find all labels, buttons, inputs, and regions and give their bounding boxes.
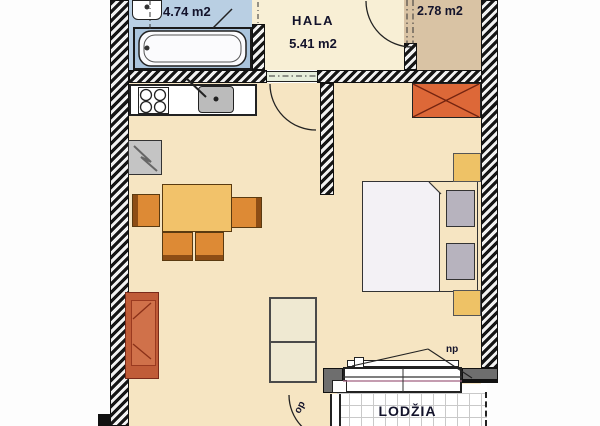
wall-stub-bottom-left [98, 414, 110, 426]
bed-pillow-2 [446, 243, 475, 280]
bathtub-zone [133, 27, 252, 70]
wall-partition [320, 83, 334, 195]
window-threshold [332, 380, 347, 393]
cabinet [269, 297, 317, 383]
hall-area-label: 5.41 m2 [283, 36, 343, 51]
chair-right [231, 197, 262, 228]
wall-hall-bottom [317, 70, 498, 83]
bathroom-area-label: 4.74 m2 [163, 4, 211, 19]
nightstand-top [453, 153, 481, 182]
armchair-seat [131, 300, 156, 366]
pier-right-line [462, 379, 498, 383]
wall-bath-hall-divider [252, 24, 265, 70]
chair-bottom-1 [162, 232, 193, 261]
kitchen-sink [198, 86, 234, 113]
wall-hall-storage-stub [404, 43, 417, 70]
floorplan-canvas: 4.74 m2 HALA 5.41 m2 2.78 m2 LODŽIA np o… [0, 0, 600, 426]
door-sill-hall [267, 71, 317, 82]
bed-pillow-1 [446, 190, 475, 227]
dining-table [162, 184, 232, 232]
wall-right [481, 0, 498, 368]
floor-hall [252, 0, 404, 70]
loggia-door-leaf [330, 394, 341, 426]
washbasin [132, 0, 162, 20]
storage-area-label: 2.78 m2 [417, 4, 463, 18]
chair-bottom-2 [195, 232, 224, 261]
bed-blanket [362, 181, 440, 292]
window-np-label: np [446, 344, 458, 355]
refrigerator-symbol [128, 140, 162, 175]
nightstand-bottom [453, 290, 481, 316]
wardrobe-shaft [412, 83, 481, 118]
floor-loggia-right [462, 384, 487, 393]
wall-bathroom-bottom [129, 70, 267, 83]
cabinet-divider [271, 341, 315, 343]
hall-name-label: HALA [283, 13, 343, 28]
stove [138, 87, 169, 114]
window-sill [343, 367, 462, 393]
loggia-dashed-edge [485, 392, 487, 426]
chair-left [132, 194, 160, 227]
loggia-name-label: LODŽIA [360, 403, 455, 419]
